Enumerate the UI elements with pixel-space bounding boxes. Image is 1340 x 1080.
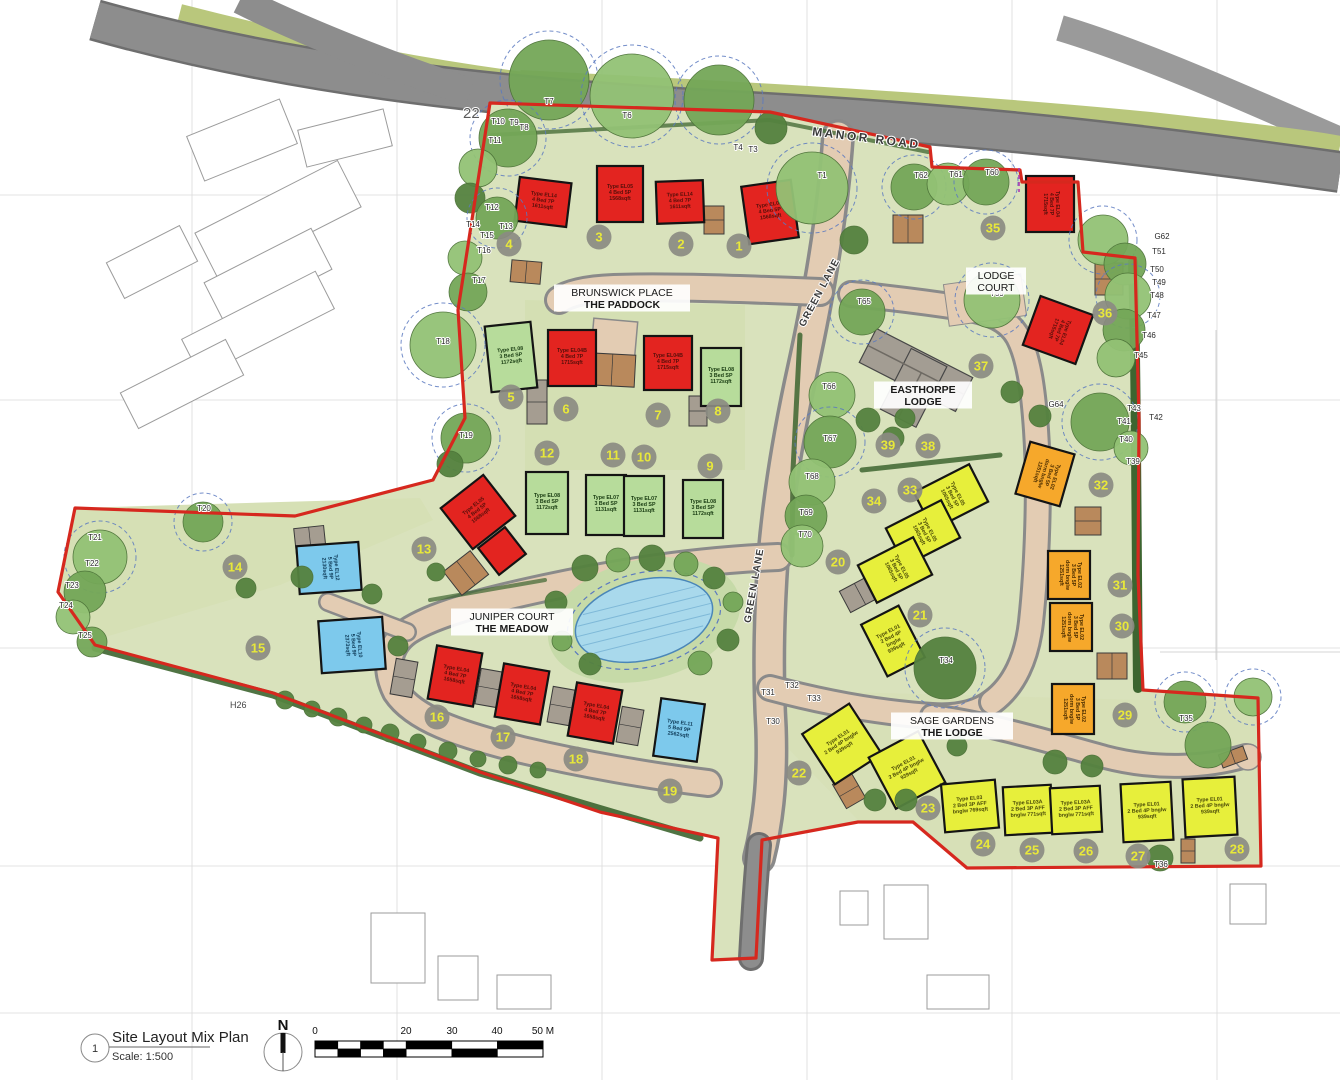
existing-building: [927, 975, 989, 1009]
street-name-line1: SAGE GARDENS: [910, 715, 994, 727]
scale-bar-segment: [497, 1049, 543, 1057]
tree: [864, 789, 886, 811]
house-red: Type EL144 Bed 7P1611sqft: [515, 177, 572, 227]
garage: [1097, 653, 1127, 679]
tree-label: T10: [491, 117, 505, 126]
plot-number: 17: [496, 730, 510, 745]
plot-number: 15: [251, 641, 265, 656]
existing-building: [438, 956, 478, 1000]
house-green: Type EL073 Bed SP1131sqft: [586, 475, 626, 535]
scale-bar-segment: [338, 1049, 361, 1057]
existing-building-outline: [884, 885, 928, 939]
plot-number: 9: [706, 459, 713, 474]
tree-label: T50: [1150, 265, 1164, 274]
tree: [840, 226, 868, 254]
tree: [703, 567, 725, 589]
tree-label: T30: [766, 717, 780, 726]
house-orange: Type EL023 Bed 5Pdorm bnglw1251sqft: [1052, 684, 1094, 734]
existing-building: [371, 913, 425, 983]
tree: [963, 159, 1009, 205]
house-type-label: Type EL073 Bed SP1131sqft: [631, 496, 657, 514]
tree: [1097, 339, 1135, 377]
drawing-title: Site Layout Mix Plan: [112, 1029, 249, 1046]
scale-bar-segment: [497, 1041, 543, 1049]
plot-number: 26: [1079, 844, 1093, 859]
tree: [688, 651, 712, 675]
tree-label: T65: [857, 297, 871, 306]
existing-building-outline: [497, 975, 551, 1009]
plot-number: 6: [562, 402, 569, 417]
house-green: Type EL073 Bed SP1131sqft: [624, 476, 664, 536]
plot-number: 13: [417, 542, 431, 557]
house-red: Type EL04B4 Bed 7P1715sqft: [548, 330, 596, 386]
tree-label: T13: [499, 222, 513, 231]
plot-number: 5: [507, 390, 514, 405]
tree-label: T4: [733, 143, 743, 152]
tree: [895, 789, 917, 811]
tree: [530, 762, 546, 778]
plot-number: 33: [903, 483, 917, 498]
tree: [572, 555, 598, 581]
plot-number: 28: [1230, 842, 1244, 857]
existing-building: [884, 885, 928, 939]
tree-label: T31: [761, 688, 775, 697]
plot-number: 39: [881, 438, 895, 453]
plot-number: 35: [986, 221, 1000, 236]
tree: [1185, 722, 1231, 768]
tree: [717, 629, 739, 651]
house-green: Type EL083 Bed SP1172sqft: [526, 472, 568, 534]
existing-building: [120, 339, 243, 428]
tree-label: T22: [85, 559, 99, 568]
plot-number: 36: [1098, 306, 1112, 321]
plot-number: 37: [974, 359, 988, 374]
tree-label: T42: [1149, 413, 1163, 422]
tree-label: T62: [914, 171, 928, 180]
tree: [776, 152, 848, 224]
tree: [723, 592, 743, 612]
scale-bar-segment: [361, 1049, 384, 1057]
tree-label: T46: [1142, 331, 1156, 340]
plot-number: 21: [913, 608, 927, 623]
plot-number: 31: [1113, 578, 1127, 593]
tree-label: T33: [807, 694, 821, 703]
plot-number: 24: [976, 837, 991, 852]
scale-tick: 20: [400, 1026, 412, 1037]
house-green: Type EL083 Bed SP1172sqft: [683, 480, 723, 538]
tree-label: T47: [1147, 311, 1161, 320]
existing-building-outline: [187, 99, 298, 181]
plot-number: 27: [1131, 849, 1145, 864]
street-name-line2: THE MEADOW: [476, 623, 549, 635]
tree-label: T69: [799, 508, 813, 517]
scale-tick: 50 M: [532, 1026, 554, 1037]
garage: [1181, 839, 1195, 863]
house-type-label: Type EL125 Bed 9P2130sqft: [320, 554, 340, 581]
house-type-label: Type EL04B4 Bed 7P1715sqft: [557, 348, 587, 366]
existing-building-outline: [927, 975, 989, 1009]
scale-bar-segment: [315, 1041, 338, 1049]
plot-number: 8: [714, 404, 721, 419]
tree-label: T20: [197, 504, 211, 513]
house-blue: Type EL105 Bed 9P2373sqft: [318, 617, 385, 673]
title-block: 1 Site Layout Mix Plan Scale: 1:500: [81, 1029, 249, 1063]
tree: [1081, 755, 1103, 777]
existing-building-outline: [1230, 884, 1266, 924]
tree: [509, 40, 589, 120]
site-layout-plan: Type EL144 Bed 7P1611sqftType EL054 Bed …: [0, 0, 1340, 1080]
tree-label: T67: [823, 434, 837, 443]
tree-label: T6: [622, 111, 632, 120]
tree-label: T25: [78, 631, 92, 640]
tree: [639, 545, 665, 571]
tree-label: T35: [1179, 714, 1193, 723]
drawing-number: 1: [92, 1043, 98, 1055]
tree-label: G62: [1154, 232, 1170, 241]
plot-number: 7: [654, 408, 661, 423]
drawing-scale: Scale: 1:500: [112, 1051, 173, 1063]
tree: [755, 112, 787, 144]
street-name-line1: EASTHORPE: [890, 384, 955, 396]
house-type-label: Type EL083 Bed SP1172sqft: [534, 493, 560, 511]
plot-number: 30: [1115, 619, 1129, 634]
existing-building-outline: [298, 109, 393, 167]
house-red: Type EL044 Bed 7P1715sqft: [1026, 176, 1074, 232]
annotation-text: H26: [230, 700, 247, 710]
house-type-label: Type EL105 Bed 9P2373sqft: [343, 631, 363, 658]
plot-number: 32: [1094, 478, 1108, 493]
scale-tick: 30: [446, 1026, 458, 1037]
house-red: Type EL054 Bed 5P1568sqft: [597, 166, 643, 222]
existing-building-outline: [371, 913, 425, 983]
tree-label: T49: [1152, 278, 1166, 287]
tree: [291, 566, 313, 588]
street-name-line2: THE LODGE: [921, 727, 982, 739]
tree: [470, 751, 486, 767]
tree-label: T1: [817, 171, 827, 180]
tree: [1043, 750, 1067, 774]
house-orange: Type EL023 Bed 5Pdorm bnglw1251sqft: [1050, 603, 1092, 651]
scale-bar-segment: [383, 1041, 406, 1049]
tree-label: T51: [1152, 247, 1166, 256]
scale-bar-segment: [452, 1049, 498, 1057]
plot-number: 14: [228, 560, 243, 575]
house-type-label: Type EL083 Bed SP1172sqft: [497, 346, 525, 367]
plot-number: 18: [569, 752, 583, 767]
existing-building: [1230, 884, 1266, 924]
scale-bar-segment: [452, 1041, 498, 1049]
tree-label: T60: [985, 168, 999, 177]
tree: [1001, 381, 1023, 403]
tree: [236, 578, 256, 598]
existing-building-outline: [438, 956, 478, 1000]
house-red: Type EL144 Bed 7P1611sqft: [656, 180, 704, 224]
house-red: Type EL044 Bed 7P1658sqft: [428, 645, 483, 706]
existing-building: [106, 226, 197, 299]
house-type-label: Type EL083 Bed SP1172sqft: [708, 367, 734, 385]
house-yellow: Type EL03A2 Bed 3P AFFbnglw 771sqft: [1050, 786, 1102, 835]
tree: [839, 289, 885, 335]
garage: [704, 206, 724, 234]
house-type-label: Type EL03A2 Bed 3P AFFbnglw 771sqft: [1010, 799, 1046, 819]
plot-number: 19: [663, 784, 677, 799]
tree-label: T34: [939, 656, 953, 665]
tree-label: T3: [748, 145, 758, 154]
street-name-line2: LODGE: [904, 396, 941, 408]
scale-bar-segment: [406, 1041, 452, 1049]
tree-label: T39: [1126, 457, 1140, 466]
tree-label: T43: [1127, 404, 1141, 413]
plot-number: 20: [831, 555, 845, 570]
existing-building-outline: [840, 891, 868, 925]
plot-number: 16: [430, 710, 444, 725]
tree-label: T15: [480, 231, 494, 240]
plot-number: 10: [637, 450, 651, 465]
plot-number: 12: [540, 446, 554, 461]
garage: [510, 260, 542, 285]
tree: [606, 548, 630, 572]
plot-number: 34: [867, 494, 882, 509]
street-name-line1: BRUNSWICK PLACE: [571, 287, 673, 299]
tree-label: T66: [822, 382, 836, 391]
tree: [684, 65, 754, 135]
house-type-label: Type EL144 Bed 7P1611sqft: [667, 192, 694, 211]
house-type-label: Type EL04B4 Bed 7P1715sqft: [653, 353, 683, 371]
house-type-label: Type EL054 Bed 5P1568sqft: [607, 184, 633, 202]
tree: [674, 552, 698, 576]
scale-bar-segment: [406, 1049, 452, 1057]
house-orange: Type EL023 Bed 5Pdorm bnglw1251sqft: [1048, 551, 1090, 599]
tree-label: T16: [477, 246, 491, 255]
house-type-label: Type EL073 Bed SP1131sqft: [593, 495, 619, 513]
tree-label: T7: [544, 97, 554, 106]
plot-number: 1: [735, 239, 742, 254]
house-red: Type EL044 Bed 7P1658sqft: [495, 663, 550, 724]
scale-bar-segment: [338, 1041, 361, 1049]
house-red: Type EL044 Bed 7P1658sqft: [568, 682, 623, 743]
scale-bar-segment: [361, 1041, 384, 1049]
tree-label: T40: [1119, 435, 1133, 444]
tree: [590, 54, 674, 138]
tree-label: T9: [509, 118, 519, 127]
tree: [579, 653, 601, 675]
garage: [893, 215, 923, 243]
scale-tick: 40: [491, 1026, 503, 1037]
tree-label: T48: [1150, 291, 1164, 300]
tree-label: T18: [436, 337, 450, 346]
tree: [499, 756, 517, 774]
tree-label: T45: [1134, 351, 1148, 360]
tree-label: T36: [1154, 860, 1168, 869]
tree-label: T61: [949, 170, 963, 179]
existing-building: [497, 975, 551, 1009]
house-blue: Type EL115 Bed 9P2562sqft: [653, 698, 705, 762]
tree-label: T23: [65, 581, 79, 590]
tree-label: T41: [1117, 417, 1131, 426]
tree-label: T12: [485, 203, 499, 212]
plot-number: 2: [677, 237, 684, 252]
existing-building: [187, 99, 298, 181]
tree-label: T19: [459, 431, 473, 440]
garage: [1075, 507, 1101, 535]
tree: [362, 584, 382, 604]
tree: [895, 408, 915, 428]
plot-number: 38: [921, 439, 935, 454]
existing-building: [840, 891, 868, 925]
house-red: Type EL04B4 Bed 7P1715sqft: [644, 336, 692, 390]
house-type-label: Type EL03A2 Bed 3P AFFbnglw 771sqft: [1058, 799, 1094, 819]
north-label: N: [278, 1017, 289, 1034]
tree: [914, 637, 976, 699]
house-green: Type EL083 Bed SP1172sqft: [485, 322, 538, 392]
scale-bar: 0 20 30 40 50 M: [312, 1026, 554, 1057]
street-name-line2: THE PADDOCK: [584, 299, 661, 311]
tree-label: T32: [785, 681, 799, 690]
plot-number: 11: [606, 448, 620, 463]
plot-number: 25: [1025, 843, 1039, 858]
plot-number: 23: [921, 801, 935, 816]
house-type-label: Type EL044 Bed 7P1715sqft: [1042, 191, 1060, 217]
tree-label: T14: [466, 220, 480, 229]
tree-label: T68: [805, 472, 819, 481]
tree-label: T24: [59, 601, 73, 610]
plot-number: 22: [792, 766, 806, 781]
plot-number: 3: [595, 230, 602, 245]
tree-label: T17: [472, 276, 486, 285]
house-yellow: Type EL012 Bed 4P bnglw939sqft: [1183, 777, 1238, 838]
north-arrow: N: [264, 1017, 302, 1071]
scale-bar-segment: [383, 1049, 406, 1057]
tree-label: T8: [519, 123, 529, 132]
house-yellow: Type EL012 Bed 4P bnglw939sqft: [1121, 782, 1174, 843]
scale-tick: 0: [312, 1026, 318, 1037]
tree-label: T11: [488, 136, 502, 145]
site-plan-page: { "title_block": { "number": "1", "title…: [0, 0, 1340, 1080]
street-name-line2: COURT: [977, 282, 1015, 294]
house-yellow: Type EL03A2 Bed 3P AFFbnglw 771sqft: [1003, 785, 1053, 835]
tree: [427, 563, 445, 581]
scale-bar-segment: [315, 1049, 338, 1057]
existing-building: [298, 109, 393, 167]
existing-building-outline: [120, 339, 243, 428]
annotation-text: 22: [463, 105, 480, 122]
house-type-label: Type EL083 Bed SP1172sqft: [690, 499, 716, 517]
tree-label: G64: [1048, 400, 1064, 409]
house-yellow: Type EL032 Bed 3P AFFbnglw 769sqft: [941, 780, 999, 833]
tree-label: T21: [88, 533, 102, 542]
tree: [809, 372, 855, 418]
street-name-line1: LODGE: [978, 270, 1015, 282]
house-green: Type EL083 Bed SP1172sqft: [701, 348, 741, 406]
existing-building-outline: [106, 226, 197, 299]
plot-number: 4: [505, 237, 513, 252]
tree-label: T70: [798, 530, 812, 539]
tree: [856, 408, 880, 432]
plot-number: 29: [1118, 708, 1132, 723]
tree: [388, 636, 408, 656]
street-name-line1: JUNIPER COURT: [470, 611, 556, 623]
